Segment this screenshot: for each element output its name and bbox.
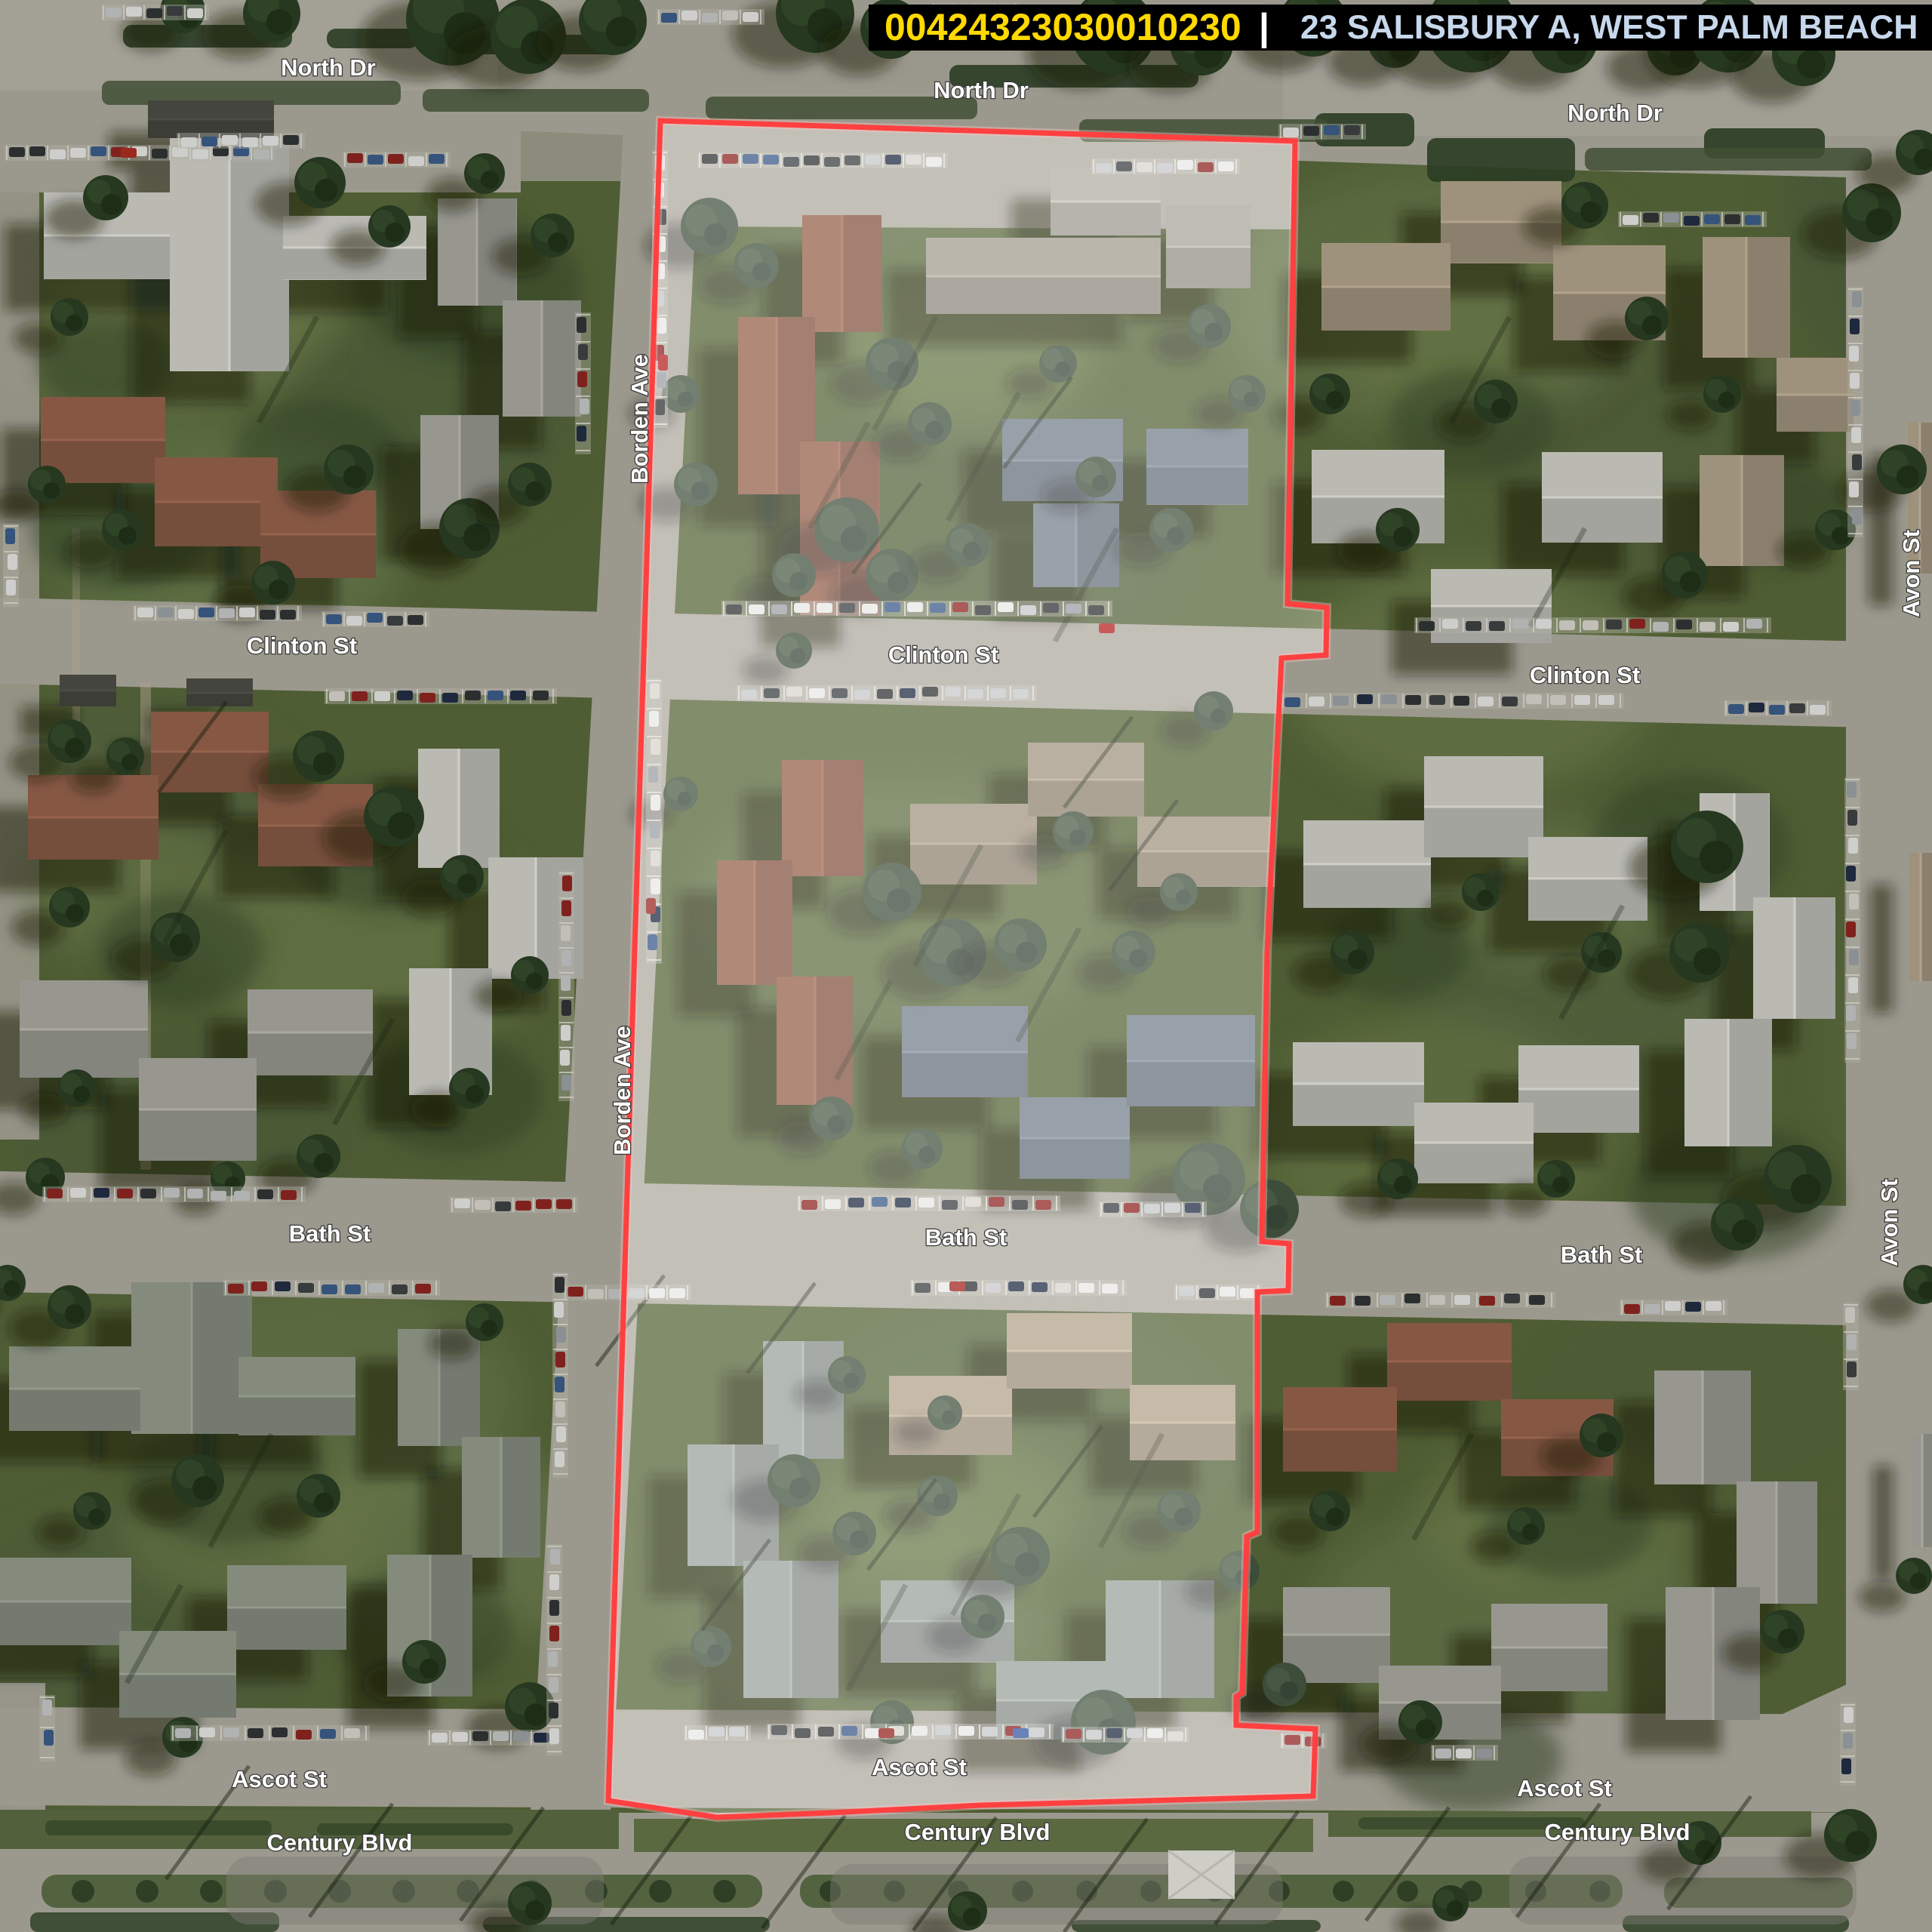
svg-text:Century Blvd: Century Blvd (1545, 1819, 1690, 1845)
svg-text:North Dr: North Dr (281, 54, 376, 81)
svg-text:Ascot St: Ascot St (232, 1766, 327, 1792)
svg-text:00424323030010230: 00424323030010230 (884, 6, 1241, 48)
svg-text:Century Blvd: Century Blvd (905, 1819, 1051, 1845)
svg-text:Avon St: Avon St (1898, 530, 1924, 617)
svg-text:North Dr: North Dr (934, 77, 1029, 103)
svg-text:Bath St: Bath St (925, 1224, 1008, 1251)
svg-text:Ascot St: Ascot St (872, 1754, 967, 1780)
svg-text:Bath St: Bath St (1561, 1241, 1643, 1268)
svg-text:23 SALISBURY A, WEST PALM BEAC: 23 SALISBURY A, WEST PALM BEACH (1300, 9, 1918, 46)
svg-text:Century Blvd: Century Blvd (267, 1829, 413, 1856)
svg-text:Borden Ave: Borden Ave (609, 1026, 635, 1155)
svg-text:Ascot St: Ascot St (1517, 1775, 1612, 1801)
svg-text:Bath St: Bath St (289, 1220, 371, 1247)
svg-text:North Dr: North Dr (1567, 100, 1663, 126)
svg-text:Clinton St: Clinton St (247, 632, 357, 659)
svg-text:Clinton St: Clinton St (1530, 662, 1640, 688)
svg-text:Clinton St: Clinton St (888, 641, 998, 668)
svg-text:Borden Ave: Borden Ave (626, 354, 653, 484)
svg-text:|: | (1259, 6, 1269, 49)
svg-text:Avon St: Avon St (1876, 1179, 1903, 1266)
